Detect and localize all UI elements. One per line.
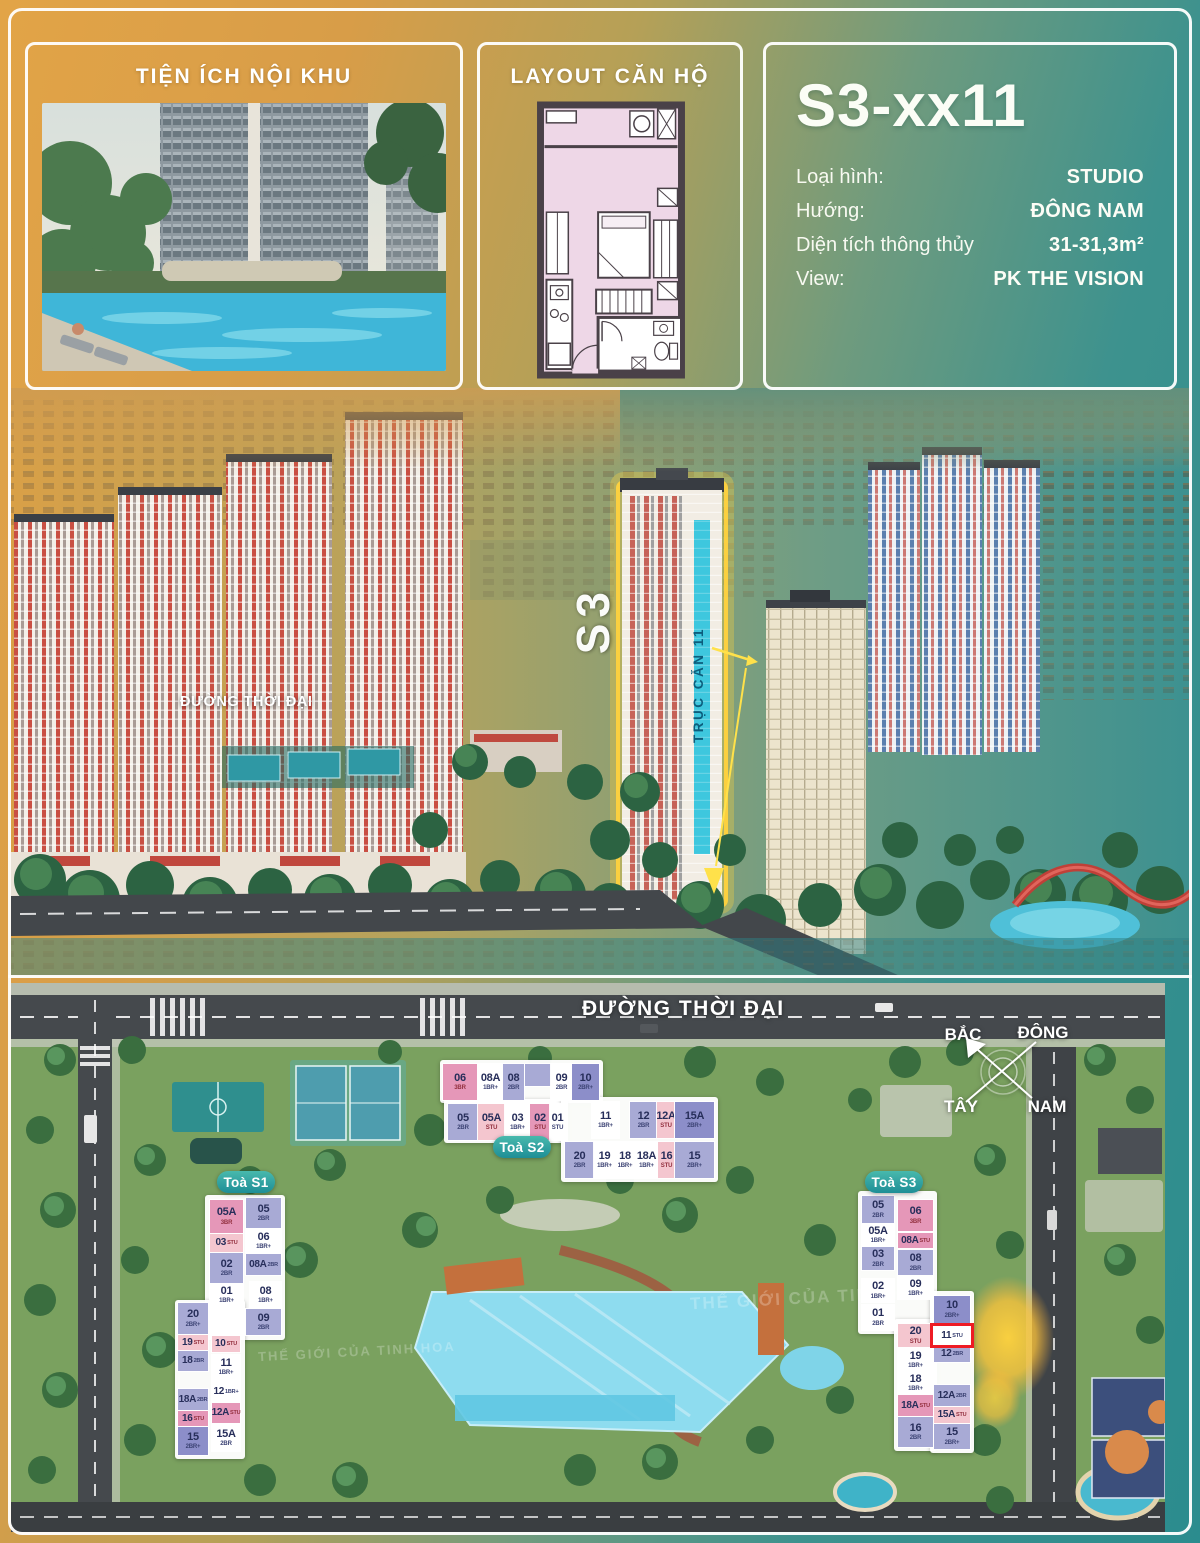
siteplan-road-label: ĐƯỜNG THỜI ĐẠI [582, 997, 785, 1021]
info-row-direction: Hướng: ĐÔNG NAM [796, 200, 1144, 223]
compass-east: ĐÔNG [1018, 1023, 1069, 1042]
compass-west: TÂY [944, 1097, 979, 1116]
amenities-photo [42, 103, 446, 371]
amenities-title: TIỆN ÍCH NỘI KHU [28, 65, 460, 89]
truc-can-11-label: TRỤC CĂN 11 [691, 530, 712, 840]
section-divider [8, 975, 1192, 978]
aerial-tennis-courts [222, 746, 414, 788]
info-label-direction: Hướng: [796, 200, 865, 223]
info-label-type: Loại hình: [796, 166, 884, 189]
info-row-area: Diện tích thông thủy 31-31,3m² [796, 234, 1144, 257]
compass-south: NAM [1028, 1097, 1067, 1116]
unit-info-rows: Loại hình: STUDIO Hướng: ĐÔNG NAM Diện t… [796, 166, 1144, 291]
info-label-area: Diện tích thông thủy [796, 234, 974, 257]
panel-layout: LAYOUT CĂN HỘ [477, 42, 743, 390]
aerial-road-label: ĐƯỜNG THỜI ĐẠI [180, 694, 312, 710]
info-value-view: PK THE VISION [993, 268, 1144, 291]
s3-tower-label: S3 [566, 586, 620, 654]
siteplan-map: BẮC ĐÔNG TÂY NAM [11, 983, 1165, 1532]
floorplan-drawing [536, 101, 686, 379]
info-value-area: 31-31,3m² [1049, 234, 1144, 257]
brochure-page: ĐƯỜNG THỜI ĐẠI S3 TRỤC CĂN 11 [0, 0, 1200, 1543]
info-row-view: View: PK THE VISION [796, 268, 1144, 291]
panel-amenities: TIỆN ÍCH NỘI KHU [25, 42, 463, 390]
panel-unit-info: S3-xx11 Loại hình: STUDIO Hướng: ĐÔNG NA… [763, 42, 1177, 390]
aerial-render [11, 388, 1189, 976]
unit-code: S3-xx11 [796, 71, 1144, 140]
kids-pond [835, 1474, 895, 1510]
compass-north: BẮC [945, 1025, 982, 1044]
building-topright [1098, 1128, 1162, 1174]
info-value-type: STUDIO [1067, 166, 1144, 189]
tennis-courts [290, 1060, 406, 1146]
info-row-type: Loại hình: STUDIO [796, 166, 1144, 189]
right-tower-cluster [868, 447, 1040, 755]
layout-title: LAYOUT CĂN HỘ [480, 65, 740, 89]
info-value-direction: ĐÔNG NAM [1030, 200, 1144, 223]
info-label-view: View: [796, 268, 845, 291]
